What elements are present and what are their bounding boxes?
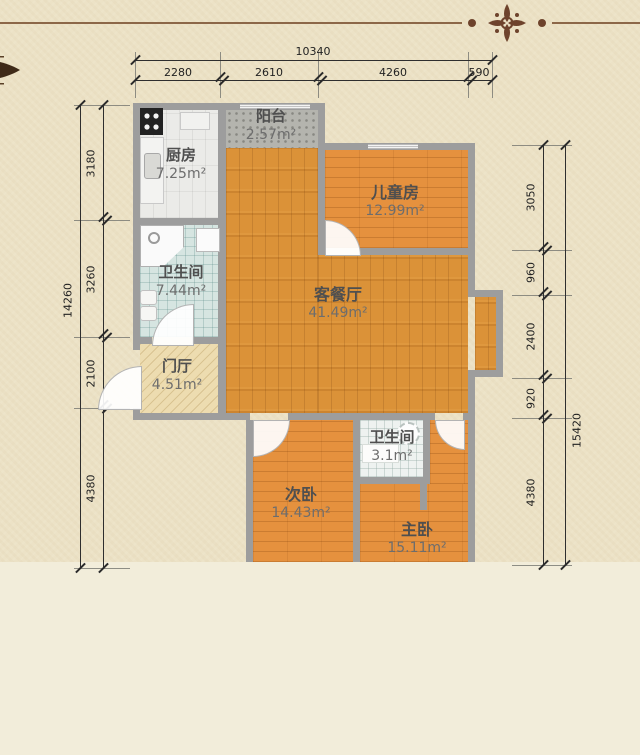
dim-right-seg-2: 2400 xyxy=(525,307,538,367)
wall xyxy=(192,337,226,344)
extension-line xyxy=(74,337,130,338)
dim-right-total: 15420 xyxy=(571,401,584,461)
dim-right-seg-0: 3050 xyxy=(525,168,538,228)
dimension-line-right-segments xyxy=(543,145,544,565)
dim-left-seg-2: 2100 xyxy=(85,344,98,404)
wall xyxy=(318,248,325,255)
wall xyxy=(133,103,140,350)
dimension-line-left-total xyxy=(80,105,81,568)
room-kids-label: 儿童房 12.99m² xyxy=(365,183,424,220)
wall xyxy=(423,420,430,477)
wall xyxy=(359,248,475,255)
header-rule-left xyxy=(0,22,462,24)
dim-right-seg-3: 920 xyxy=(525,369,538,429)
room-bath-small-label: 卫生间 3.1m² xyxy=(369,428,414,465)
extension-line xyxy=(512,418,572,419)
dim-right-seg-1: 960 xyxy=(525,243,538,303)
dim-top-seg-2: 4260 xyxy=(363,66,423,79)
wall xyxy=(468,150,475,297)
toilet-icon xyxy=(140,306,157,321)
dim-left-seg-1: 3260 xyxy=(85,250,98,310)
wall xyxy=(468,420,475,562)
washer-icon xyxy=(196,228,220,252)
room-bed-master-label: 主卧 15.11m² xyxy=(387,520,446,557)
feather-ornament-icon xyxy=(0,50,22,90)
room-balcony-label: 阳台 2.57m² xyxy=(246,107,296,144)
living-room-floor xyxy=(318,255,468,413)
showerhead-icon xyxy=(148,232,160,244)
wall xyxy=(496,290,503,377)
wall xyxy=(463,413,475,420)
dim-left-seg-3: 4380 xyxy=(85,459,98,519)
floorplan-canvas: 10340 2280 2610 4260 590 14260 3180 3260… xyxy=(0,0,640,755)
dimension-line-left-segments xyxy=(103,105,104,568)
wall xyxy=(420,484,427,510)
dim-top-seg-3: 590 xyxy=(449,66,509,79)
extension-line xyxy=(74,220,130,221)
entry-door-arc xyxy=(98,366,142,410)
wall xyxy=(133,413,250,420)
washbasin-icon xyxy=(140,290,157,305)
extension-line xyxy=(512,378,572,379)
fridge-icon xyxy=(180,112,210,130)
extension-line xyxy=(512,295,572,296)
lower-background xyxy=(0,562,640,755)
wall xyxy=(288,413,435,420)
wall xyxy=(246,420,253,562)
wall xyxy=(318,103,325,255)
window-kids-room xyxy=(368,144,418,149)
wall xyxy=(353,477,430,484)
dim-top-total: 10340 xyxy=(283,45,343,58)
living-room-bay-floor xyxy=(475,297,496,370)
dim-left-seg-0: 3180 xyxy=(85,134,98,194)
living-room-floor xyxy=(226,148,318,413)
room-kitchen-label: 厨房 7.25m² xyxy=(156,146,206,183)
dimension-line-top-total xyxy=(135,60,492,61)
wall xyxy=(133,218,226,225)
dim-right-seg-4: 4380 xyxy=(525,463,538,523)
wall xyxy=(133,337,152,344)
wall xyxy=(353,420,360,562)
room-bed-second-label: 次卧 14.43m² xyxy=(271,485,330,522)
extension-line xyxy=(512,250,572,251)
room-foyer-label: 门厅 4.51m² xyxy=(152,357,202,394)
room-bath-main-label: 卫生间 7.44m² xyxy=(156,263,206,300)
stove-icon xyxy=(140,108,163,135)
dim-left-total: 14260 xyxy=(62,271,75,331)
room-living-label: 客餐厅 41.49m² xyxy=(308,285,367,322)
wall xyxy=(218,110,226,420)
dim-top-seg-1: 2610 xyxy=(239,66,299,79)
rosette-ornament-icon xyxy=(440,2,640,48)
dim-top-seg-0: 2280 xyxy=(148,66,208,79)
dimension-line-right-total xyxy=(565,145,566,565)
